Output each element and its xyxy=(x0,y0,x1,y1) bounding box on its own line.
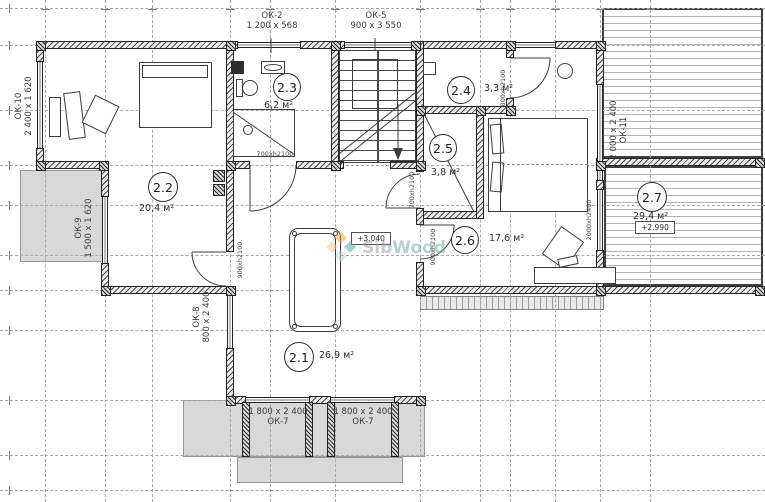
window-opening xyxy=(246,397,309,403)
table-corner xyxy=(333,231,338,236)
flue-block xyxy=(213,184,225,196)
room-number: 2.6 xyxy=(455,233,475,248)
elevation-marker-terrace: +2.990 xyxy=(635,221,675,234)
window-opening xyxy=(597,190,603,250)
table-corner xyxy=(292,231,297,236)
grid-tick xyxy=(416,9,425,10)
grid-line-horizontal xyxy=(0,455,765,456)
window-opening xyxy=(238,42,300,48)
wall-post xyxy=(596,161,606,171)
grid-tick xyxy=(9,41,10,50)
grid-line-vertical xyxy=(510,0,511,502)
wall-post xyxy=(416,286,426,296)
window-opening xyxy=(102,197,108,263)
room-badge-2-2: 2.2 xyxy=(148,172,178,202)
wall-post xyxy=(476,106,486,116)
door-label-room26: 900xh2100 xyxy=(428,217,438,277)
table-inner xyxy=(294,233,336,327)
wall-post xyxy=(226,41,236,51)
room-number: 2.7 xyxy=(642,190,662,205)
bed-pillow xyxy=(142,65,208,78)
wall-post xyxy=(506,41,516,51)
window-label-ok8: ОК-8 800 x 2 400 xyxy=(192,273,214,361)
window-size: 2 400 x 1 620 xyxy=(24,48,34,164)
grid-line-horizontal xyxy=(0,8,765,9)
flue-block xyxy=(213,170,225,182)
stair-landing xyxy=(352,59,398,109)
wall-post xyxy=(755,158,765,168)
grid-tick xyxy=(9,326,10,335)
room-badge-2-4: 2.4 xyxy=(447,76,475,104)
room-number: 2.3 xyxy=(277,80,297,95)
window-size: 1 800 x 2 400 xyxy=(243,407,313,417)
wall-post xyxy=(416,161,426,171)
desk xyxy=(534,267,616,284)
grid-line-horizontal xyxy=(0,490,765,491)
grid-tick xyxy=(9,161,10,170)
table-corner xyxy=(333,324,338,329)
lower-roof-deck xyxy=(237,457,403,483)
wall-segment xyxy=(226,165,234,252)
bed-center-line xyxy=(502,164,588,165)
grid-line-horizontal xyxy=(0,255,765,256)
wall-post xyxy=(226,396,236,406)
grid-tick xyxy=(9,396,10,405)
chair xyxy=(82,95,120,135)
window-opening xyxy=(515,42,555,48)
grid-line-vertical xyxy=(45,0,46,502)
window-size: 1 800 x 2 400 xyxy=(328,407,398,417)
staircase xyxy=(339,50,416,163)
window-name: ОК-5 xyxy=(338,11,414,21)
wall-post xyxy=(331,161,341,171)
window-label-ok9: ОК-9 1 500 x 1 620 xyxy=(74,176,96,280)
wall-segment xyxy=(40,41,238,49)
balcony-edge xyxy=(420,296,604,310)
window-name: ОК-8 xyxy=(192,273,202,361)
wall-post xyxy=(416,396,426,406)
grid-line-vertical xyxy=(480,0,481,502)
grid-tick xyxy=(148,9,157,10)
window-size: 2 000 x 2 400 xyxy=(609,76,619,184)
wall-segment xyxy=(596,180,604,190)
room-number: 2.2 xyxy=(153,180,173,195)
window-opening xyxy=(37,62,43,148)
grid-tick xyxy=(226,9,235,10)
wall-segment xyxy=(604,286,763,294)
window-label-ok11: 2 000 x 2 400 ОК-11 xyxy=(609,76,631,184)
grid-tick xyxy=(646,9,655,10)
grid-tick xyxy=(331,9,340,10)
door-label-bath: 700xh2100 xyxy=(246,149,304,159)
floor-plan: ОК-2 1 200 x 568 ОК-5 900 x 3 550 1 800 … xyxy=(0,0,765,502)
window-label-ok7b: 1 800 x 2 400 ОК-7 xyxy=(328,407,398,427)
window-opening xyxy=(331,397,394,403)
grid-tick xyxy=(9,201,10,210)
room-number: 2.5 xyxy=(433,141,453,156)
shower-drain xyxy=(243,125,253,135)
grid-tick xyxy=(9,286,10,295)
ceiling-lamp xyxy=(557,63,573,79)
wall-post xyxy=(99,161,109,171)
room-badge-2-1: 2.1 xyxy=(284,342,314,372)
wall-post xyxy=(36,41,46,51)
wall-post xyxy=(226,161,236,171)
window-size: 900 x 3 550 xyxy=(338,21,414,31)
window-size: 1 200 x 568 xyxy=(234,21,310,31)
toilet-bowl xyxy=(242,80,258,96)
grid-tick xyxy=(551,9,560,10)
wall-post xyxy=(101,286,111,296)
wall-post xyxy=(596,41,606,51)
grid-line-vertical xyxy=(650,0,651,502)
room-area-2-1: 26,9 м² xyxy=(319,350,354,361)
table-corner xyxy=(292,324,297,329)
vent-box xyxy=(423,62,436,75)
terrace-deck xyxy=(604,166,763,286)
window-name: ОК-11 xyxy=(619,76,629,184)
wall-post xyxy=(755,286,765,296)
wall-segment xyxy=(476,110,484,219)
room-area-2-3: 6,2 м² xyxy=(264,100,293,111)
room-number: 2.1 xyxy=(289,350,309,365)
room-area-2-5: 3,8 м² xyxy=(431,167,460,178)
grid-tick xyxy=(596,9,605,10)
room-badge-2-3: 2.3 xyxy=(273,73,301,101)
door-label-terrace: 2000xh2400 xyxy=(584,190,594,250)
window-name: ОК-7 xyxy=(243,417,313,427)
room-badge-2-7: 2.7 xyxy=(637,182,667,212)
room-area-2-4: 3,3 м² xyxy=(484,83,513,94)
grid-tick xyxy=(9,251,10,260)
wall-segment xyxy=(101,286,234,294)
window-name: ОК-7 xyxy=(328,417,398,427)
stair-stringer xyxy=(377,51,379,162)
grid-tick xyxy=(506,9,515,10)
room-number: 2.4 xyxy=(451,83,471,98)
window-name: ОК-2 xyxy=(234,11,310,21)
window-label-ok10: ОК-10 2 400 x 1 620 xyxy=(14,48,36,164)
window-label-ok5: ОК-5 900 x 3 550 xyxy=(338,11,414,31)
grid-tick xyxy=(9,486,10,495)
window-label-ok2: ОК-2 1 200 x 568 xyxy=(234,11,310,31)
wall-segment xyxy=(416,208,424,225)
window-name: ОК-10 xyxy=(14,48,24,164)
window-opening xyxy=(345,42,415,48)
room-area-2-6: 17,6 м² xyxy=(489,233,524,244)
grid-tick xyxy=(9,4,10,13)
grid-tick xyxy=(266,9,275,10)
grid-tick xyxy=(476,9,485,10)
wardrobe-diagonal xyxy=(424,114,474,212)
sink-basin xyxy=(264,64,282,71)
grid-tick xyxy=(41,9,50,10)
window-size: 1 500 x 1 620 xyxy=(84,176,94,280)
window-opening xyxy=(227,292,233,348)
boiler-icon xyxy=(231,61,244,74)
door-arc xyxy=(510,58,550,98)
grid-tick xyxy=(9,106,10,115)
window-label-ok7a: 1 800 x 2 400 ОК-7 xyxy=(243,407,313,427)
wall-post xyxy=(331,41,341,51)
wall-post xyxy=(411,41,421,51)
door-label-room22: 900xh2100 xyxy=(235,230,245,290)
desk xyxy=(63,91,86,140)
bed-pillow xyxy=(490,124,505,155)
wall-post xyxy=(596,286,606,296)
elevation-marker-hall: +3.040 xyxy=(351,232,391,245)
shelf xyxy=(49,97,61,137)
room-area-2-2: 20,4 м² xyxy=(139,203,174,214)
window-name: ОК-9 xyxy=(74,176,84,280)
door-label-closet: 700xh2100 xyxy=(407,160,417,220)
wall-segment xyxy=(331,41,339,169)
wall-post xyxy=(36,161,46,171)
room-badge-2-6: 2.6 xyxy=(451,226,479,254)
wall-segment xyxy=(415,41,515,49)
window-size: 800 x 2 400 xyxy=(202,273,212,361)
grid-line-horizontal xyxy=(0,330,765,331)
grid-tick xyxy=(9,451,10,460)
wall-post xyxy=(416,106,426,116)
room-badge-2-5: 2.5 xyxy=(429,134,457,162)
grid-tick xyxy=(101,9,110,10)
wall-segment xyxy=(416,286,604,294)
